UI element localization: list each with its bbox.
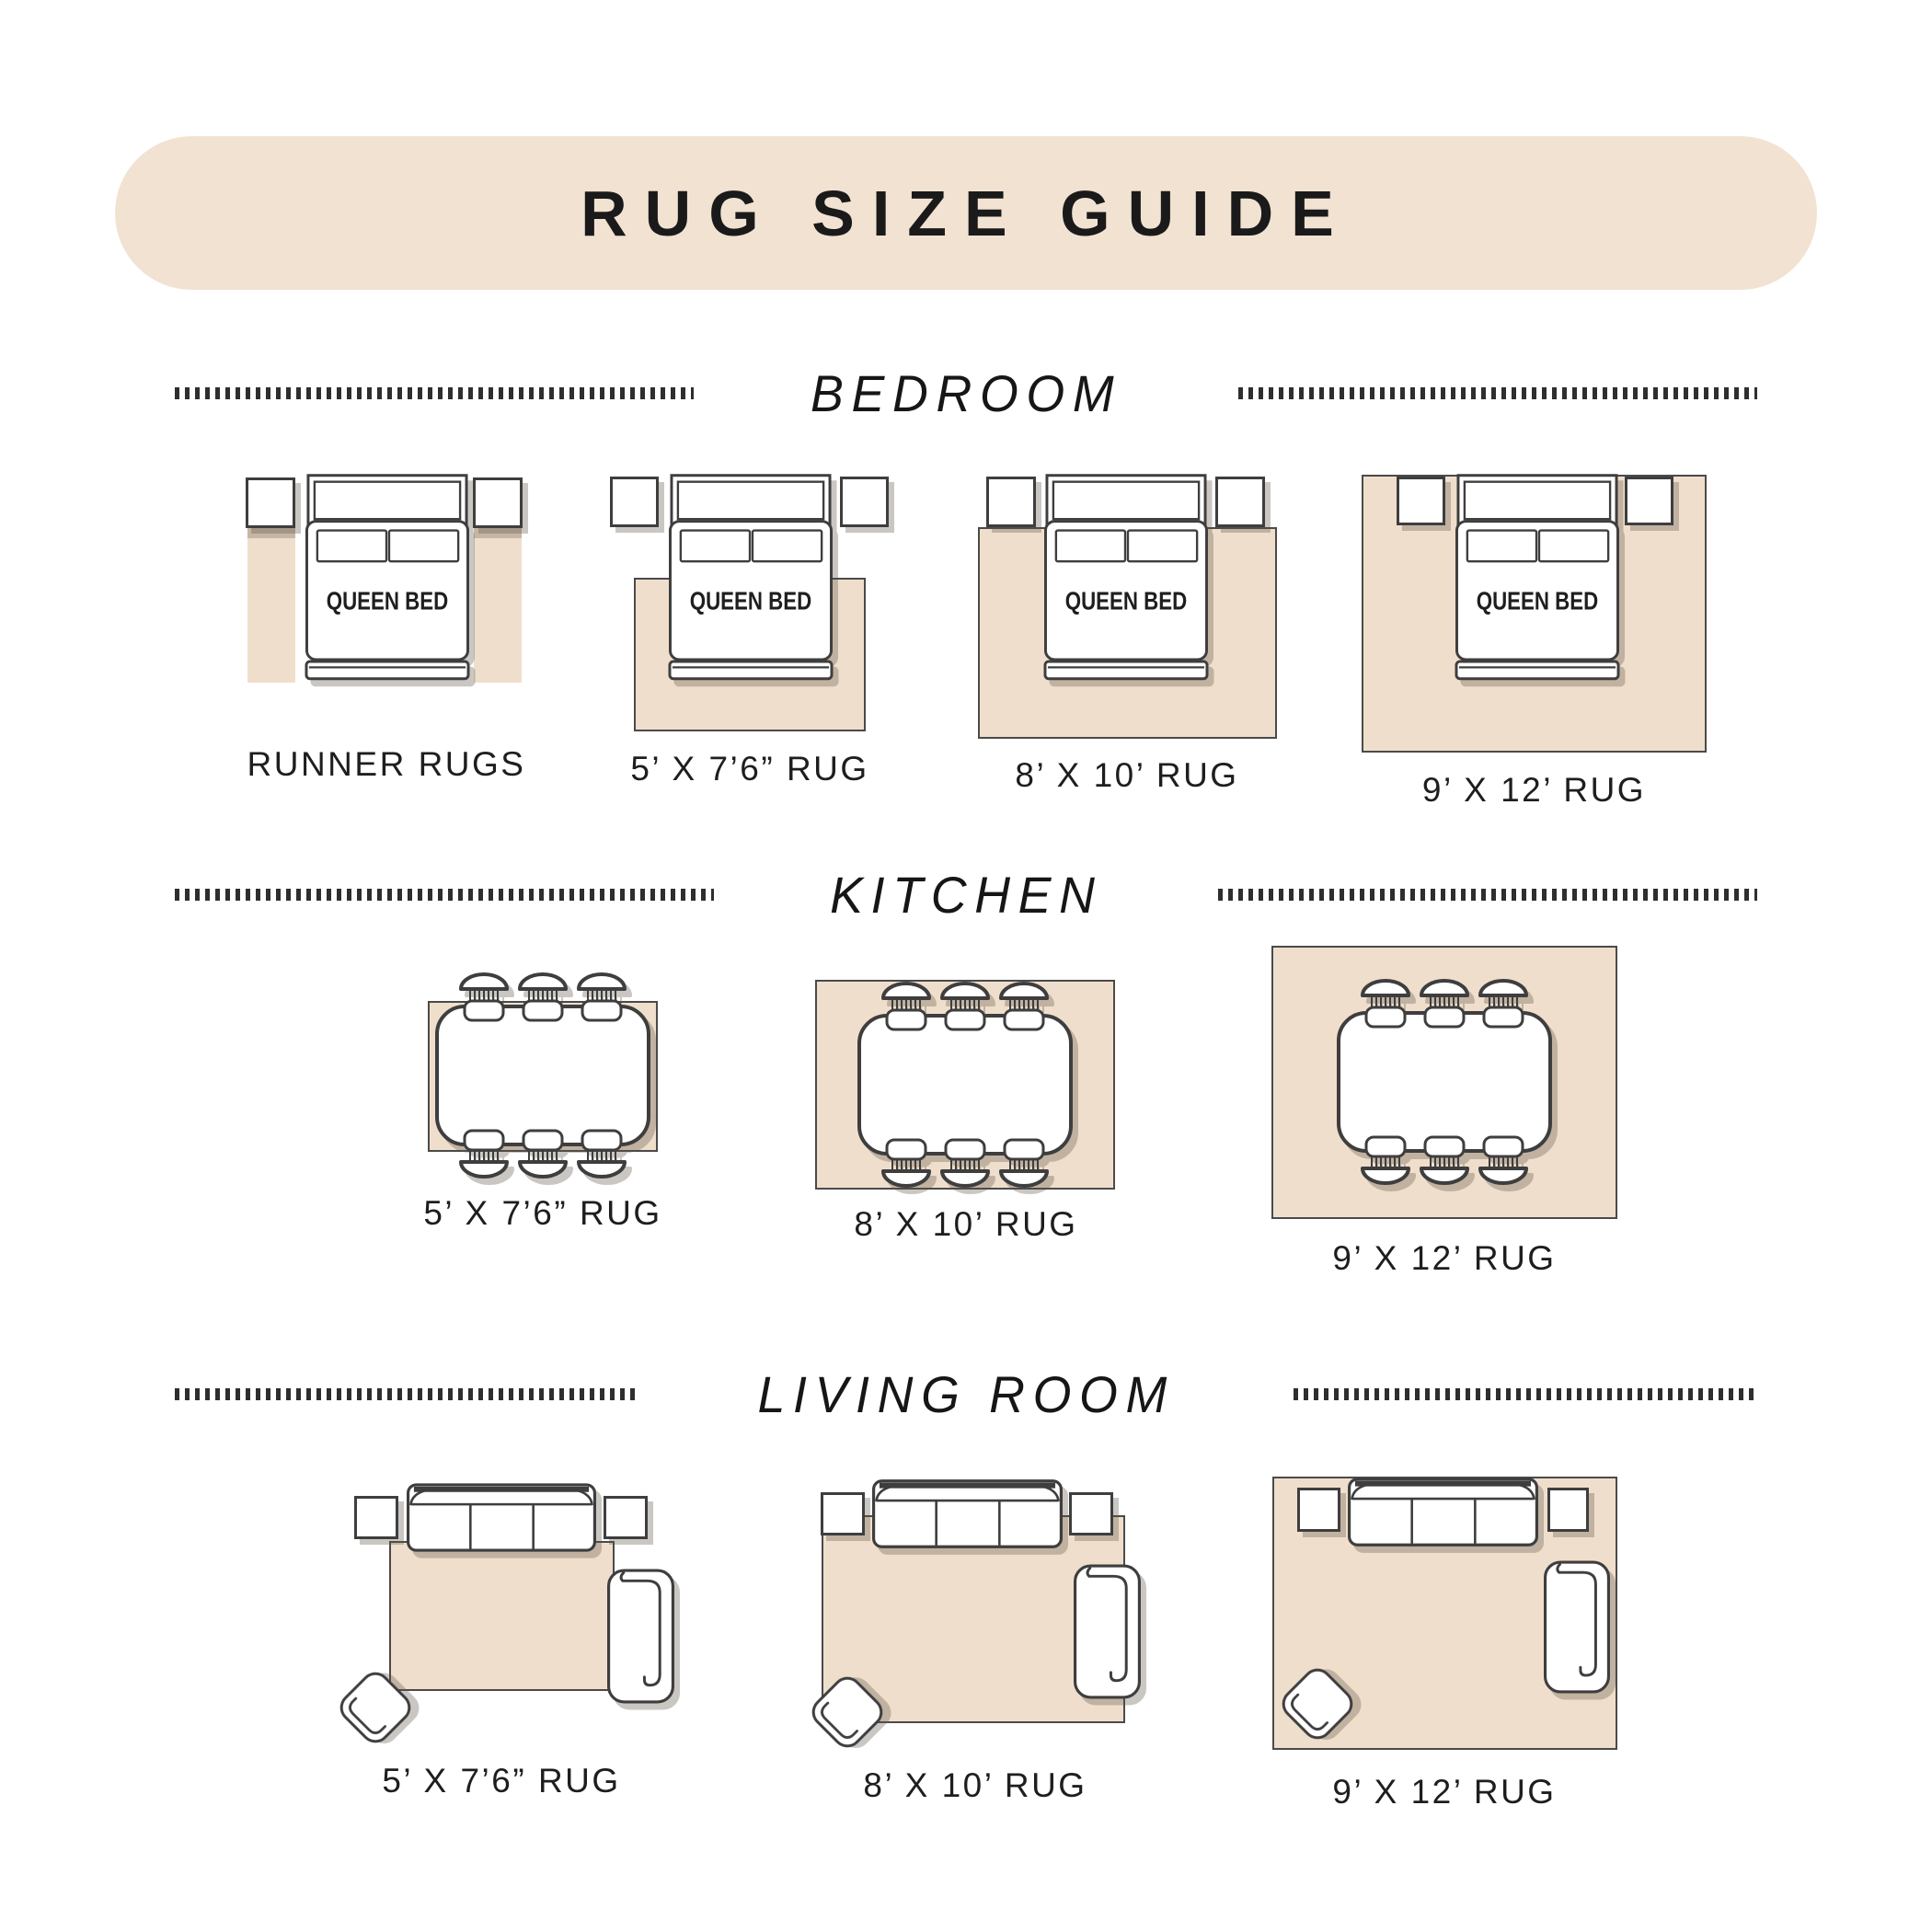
section-header-kitchen: KITCHEN xyxy=(175,864,1757,925)
side-table-left xyxy=(821,1492,865,1535)
diagram-label: 9’ X 12’ RUG xyxy=(1265,1773,1624,1811)
sofa xyxy=(407,1483,596,1552)
queen-bed xyxy=(1044,473,1208,681)
dotted-divider-right xyxy=(1294,1388,1757,1400)
side-table-left xyxy=(354,1496,398,1539)
dotted-divider-left xyxy=(175,889,714,901)
nightstand-left xyxy=(986,477,1036,527)
side-table-left xyxy=(1297,1488,1340,1532)
side-table-right xyxy=(604,1496,648,1539)
diagram-living-8x10: 8’ X 10’ RUG xyxy=(800,1463,1150,1808)
kitchen-dining-set xyxy=(405,955,681,1196)
diagram-living-5x76: 5’ X 7’6” RUG xyxy=(350,1463,681,1803)
diagram-bedroom-5x76: 5’ X 7’6” RUG xyxy=(598,465,902,788)
queen-bed xyxy=(1455,473,1619,681)
kitchen-dining-set xyxy=(827,964,1103,1205)
side-table-right xyxy=(1547,1488,1589,1532)
side-table-right xyxy=(1069,1492,1113,1535)
rug-size-guide-infographic: RUG SIZE GUIDE BEDROOM RUNNER RUGS 5’ X … xyxy=(0,0,1932,1932)
diagram-kitchen-5x76: 5’ X 7’6” RUG xyxy=(405,948,681,1237)
diagram-label: 9’ X 12’ RUG xyxy=(1265,1239,1624,1278)
diagram-label: RUNNER RUGS xyxy=(230,745,543,784)
area-rug xyxy=(389,1541,615,1691)
diagram-label: 5’ X 7’6” RUG xyxy=(598,750,902,788)
section-title-bedroom: BEDROOM xyxy=(811,363,1121,423)
diagram-bedroom-9x12: 9’ X 12’ RUG xyxy=(1357,465,1711,800)
nightstand-right xyxy=(1215,477,1265,527)
diagram-label: 9’ X 12’ RUG xyxy=(1357,771,1711,810)
section-title-living-room: LIVING ROOM xyxy=(757,1364,1174,1424)
dotted-divider-left xyxy=(175,387,694,399)
title-banner: RUG SIZE GUIDE xyxy=(115,136,1817,290)
kitchen-dining-set xyxy=(1306,961,1582,1202)
queen-bed xyxy=(305,473,469,681)
diagram-bedroom-8x10: 8’ X 10’ RUG xyxy=(971,465,1283,791)
nightstand-left xyxy=(1397,477,1445,525)
armchair xyxy=(1074,1564,1141,1699)
section-header-bedroom: BEDROOM xyxy=(175,362,1757,423)
armchair xyxy=(1544,1559,1610,1695)
dotted-divider-left xyxy=(175,1388,638,1400)
diagram-living-9x12: 9’ X 12’ RUG xyxy=(1265,1454,1624,1812)
section-header-living-room: LIVING ROOM xyxy=(175,1363,1757,1424)
sofa xyxy=(1348,1478,1538,1547)
diagram-label: 8’ X 10’ RUG xyxy=(800,1766,1150,1805)
diagram-bedroom-runner-rugs: RUNNER RUGS xyxy=(230,465,543,788)
dotted-divider-right xyxy=(1238,387,1757,399)
diagram-kitchen-9x12: 9’ X 12’ RUG xyxy=(1265,929,1624,1283)
diagram-label: 8’ X 10’ RUG xyxy=(971,756,1283,795)
sofa xyxy=(872,1479,1063,1548)
queen-bed xyxy=(669,473,833,681)
nightstand-left xyxy=(246,477,295,528)
runner-shadow xyxy=(474,528,522,538)
diagram-label: 8’ X 10’ RUG xyxy=(810,1205,1122,1244)
dotted-divider-right xyxy=(1218,889,1757,901)
diagram-label: 5’ X 7’6” RUG xyxy=(336,1762,667,1800)
runner-rug-left xyxy=(247,528,295,683)
armchair xyxy=(607,1569,674,1704)
nightstand-right xyxy=(473,477,523,528)
section-title-kitchen: KITCHEN xyxy=(830,865,1102,925)
nightstand-right xyxy=(1625,477,1673,525)
nightstand-left xyxy=(610,477,659,527)
page-title: RUG SIZE GUIDE xyxy=(581,177,1351,250)
diagram-kitchen-8x10: 8’ X 10’ RUG xyxy=(810,948,1122,1242)
runner-rug-right xyxy=(474,528,522,683)
runner-shadow xyxy=(247,528,295,538)
nightstand-right xyxy=(840,477,889,527)
diagram-label: 5’ X 7’6” RUG xyxy=(405,1194,681,1233)
